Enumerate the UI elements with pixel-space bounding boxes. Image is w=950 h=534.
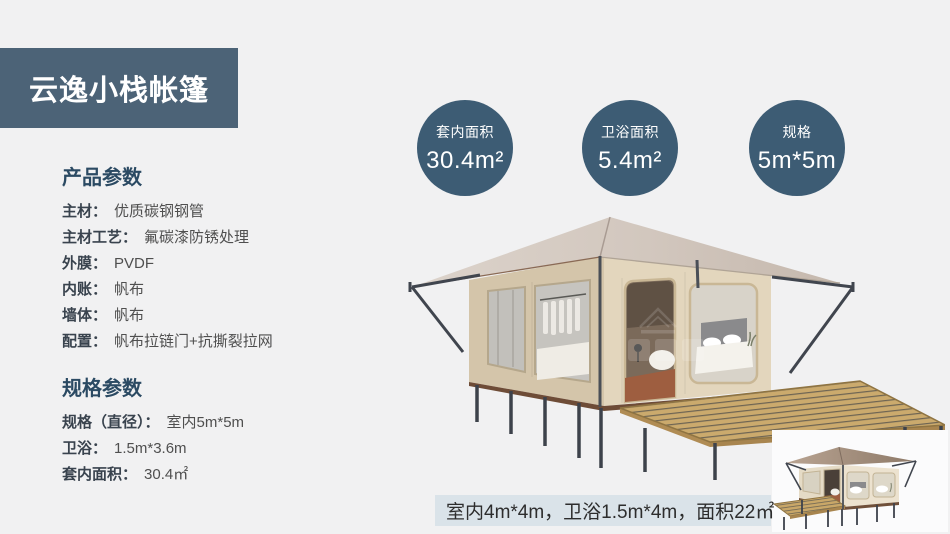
spec-row-size: 规格（直径）：室内5m*5m — [62, 415, 402, 431]
front-window — [690, 284, 757, 383]
product-slide: 云逸小栈帐篷 产品参数 主材：优质碳钢钢管 主材工艺：氟碳漆防锈处理 外膜：PV… — [0, 0, 950, 534]
spec-row-wall: 墙体：帆布 — [62, 308, 402, 324]
spec-row-bathroom: 卫浴：1.5m*3.6m — [62, 441, 402, 457]
product-params-heading: 产品参数 — [62, 161, 402, 190]
spec-row-outer-membrane: 外膜：PVDF — [62, 256, 402, 272]
left-window-2 — [535, 280, 590, 382]
spec-row-inner-tent: 内账：帆布 — [62, 282, 402, 298]
small-tent-caption: 室内4m*4m，卫浴1.5m*4m，面积22㎡ — [435, 495, 771, 526]
badge-bathroom-area: 卫浴面积 5.4m² — [582, 100, 678, 196]
size-params-heading: 规格参数 — [62, 372, 402, 401]
small-tent-image — [772, 430, 948, 532]
badge-inner-area: 套内面积 30.4m² — [417, 100, 513, 196]
page-title: 云逸小栈帐篷 — [29, 67, 209, 109]
spec-panel: 产品参数 主材：优质碳钢钢管 主材工艺：氟碳漆防锈处理 外膜：PVDF 内账：帆… — [62, 161, 402, 493]
badge-spec: 规格 5m*5m — [749, 100, 845, 196]
spec-row-material: 主材：优质碳钢钢管 — [62, 204, 402, 220]
left-window-1 — [488, 287, 525, 372]
spec-row-config: 配置：帆布拉链门+抗撕裂拉网 — [62, 334, 402, 350]
spec-row-material-process: 主材工艺：氟碳漆防锈处理 — [62, 230, 402, 246]
roof-pole — [697, 260, 698, 288]
product-title-banner: 云逸小栈帐篷 — [0, 48, 238, 128]
spec-row-inner-area: 套内面积：30.4㎡ — [62, 467, 402, 483]
